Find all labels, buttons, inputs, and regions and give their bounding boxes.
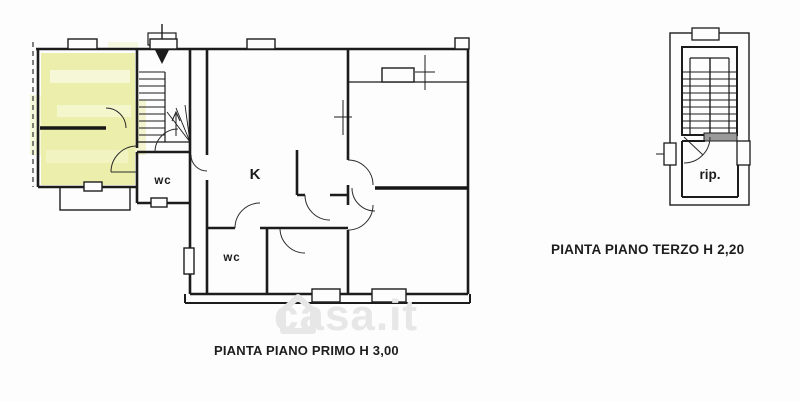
door-arc bbox=[305, 195, 330, 220]
floor-plan-terzo: rip. bbox=[656, 28, 750, 205]
floor-plan-primo: K wc wc bbox=[30, 24, 470, 303]
door-arcs bbox=[106, 108, 375, 253]
door-arc bbox=[155, 129, 178, 152]
window-symbol bbox=[151, 198, 167, 207]
floor-plan-drawing: K wc wc rip. bbox=[0, 0, 800, 401]
window-symbol bbox=[372, 289, 406, 302]
window-symbol bbox=[84, 182, 102, 191]
window-symbol bbox=[312, 289, 340, 302]
door-arc bbox=[348, 160, 373, 185]
caption-piano-terzo: PIANTA PIANO TERZO H 2,20 bbox=[551, 242, 744, 257]
staircase-icon bbox=[139, 72, 190, 142]
landing-slab bbox=[704, 133, 737, 141]
room-label-kitchen: K bbox=[250, 166, 261, 183]
highlighted-room-area bbox=[30, 42, 146, 185]
door-arc bbox=[348, 205, 373, 230]
window-symbol bbox=[737, 141, 750, 165]
door-arc bbox=[191, 155, 207, 171]
terzo-staircase-icon bbox=[682, 47, 737, 135]
window-symbol bbox=[184, 248, 194, 274]
window-symbol bbox=[247, 39, 275, 49]
door-arc bbox=[235, 203, 260, 228]
room-label-wc-upper: wc bbox=[153, 175, 171, 187]
window-symbol bbox=[150, 39, 177, 49]
window-symbol bbox=[664, 143, 676, 165]
door-arc bbox=[280, 228, 305, 253]
room-label-storage: rip. bbox=[699, 167, 720, 182]
room-label-wc-lower: wc bbox=[222, 252, 240, 264]
door-arc bbox=[352, 188, 375, 211]
window-symbol bbox=[692, 28, 719, 40]
floor-plan-scan: K wc wc rip. bbox=[0, 0, 800, 401]
window-symbol bbox=[68, 39, 97, 49]
terzo-side-windows bbox=[656, 141, 750, 165]
caption-piano-primo: PIANTA PIANO PRIMO H 3,00 bbox=[214, 343, 399, 358]
window-symbol bbox=[382, 68, 414, 82]
window-symbol bbox=[455, 38, 469, 49]
